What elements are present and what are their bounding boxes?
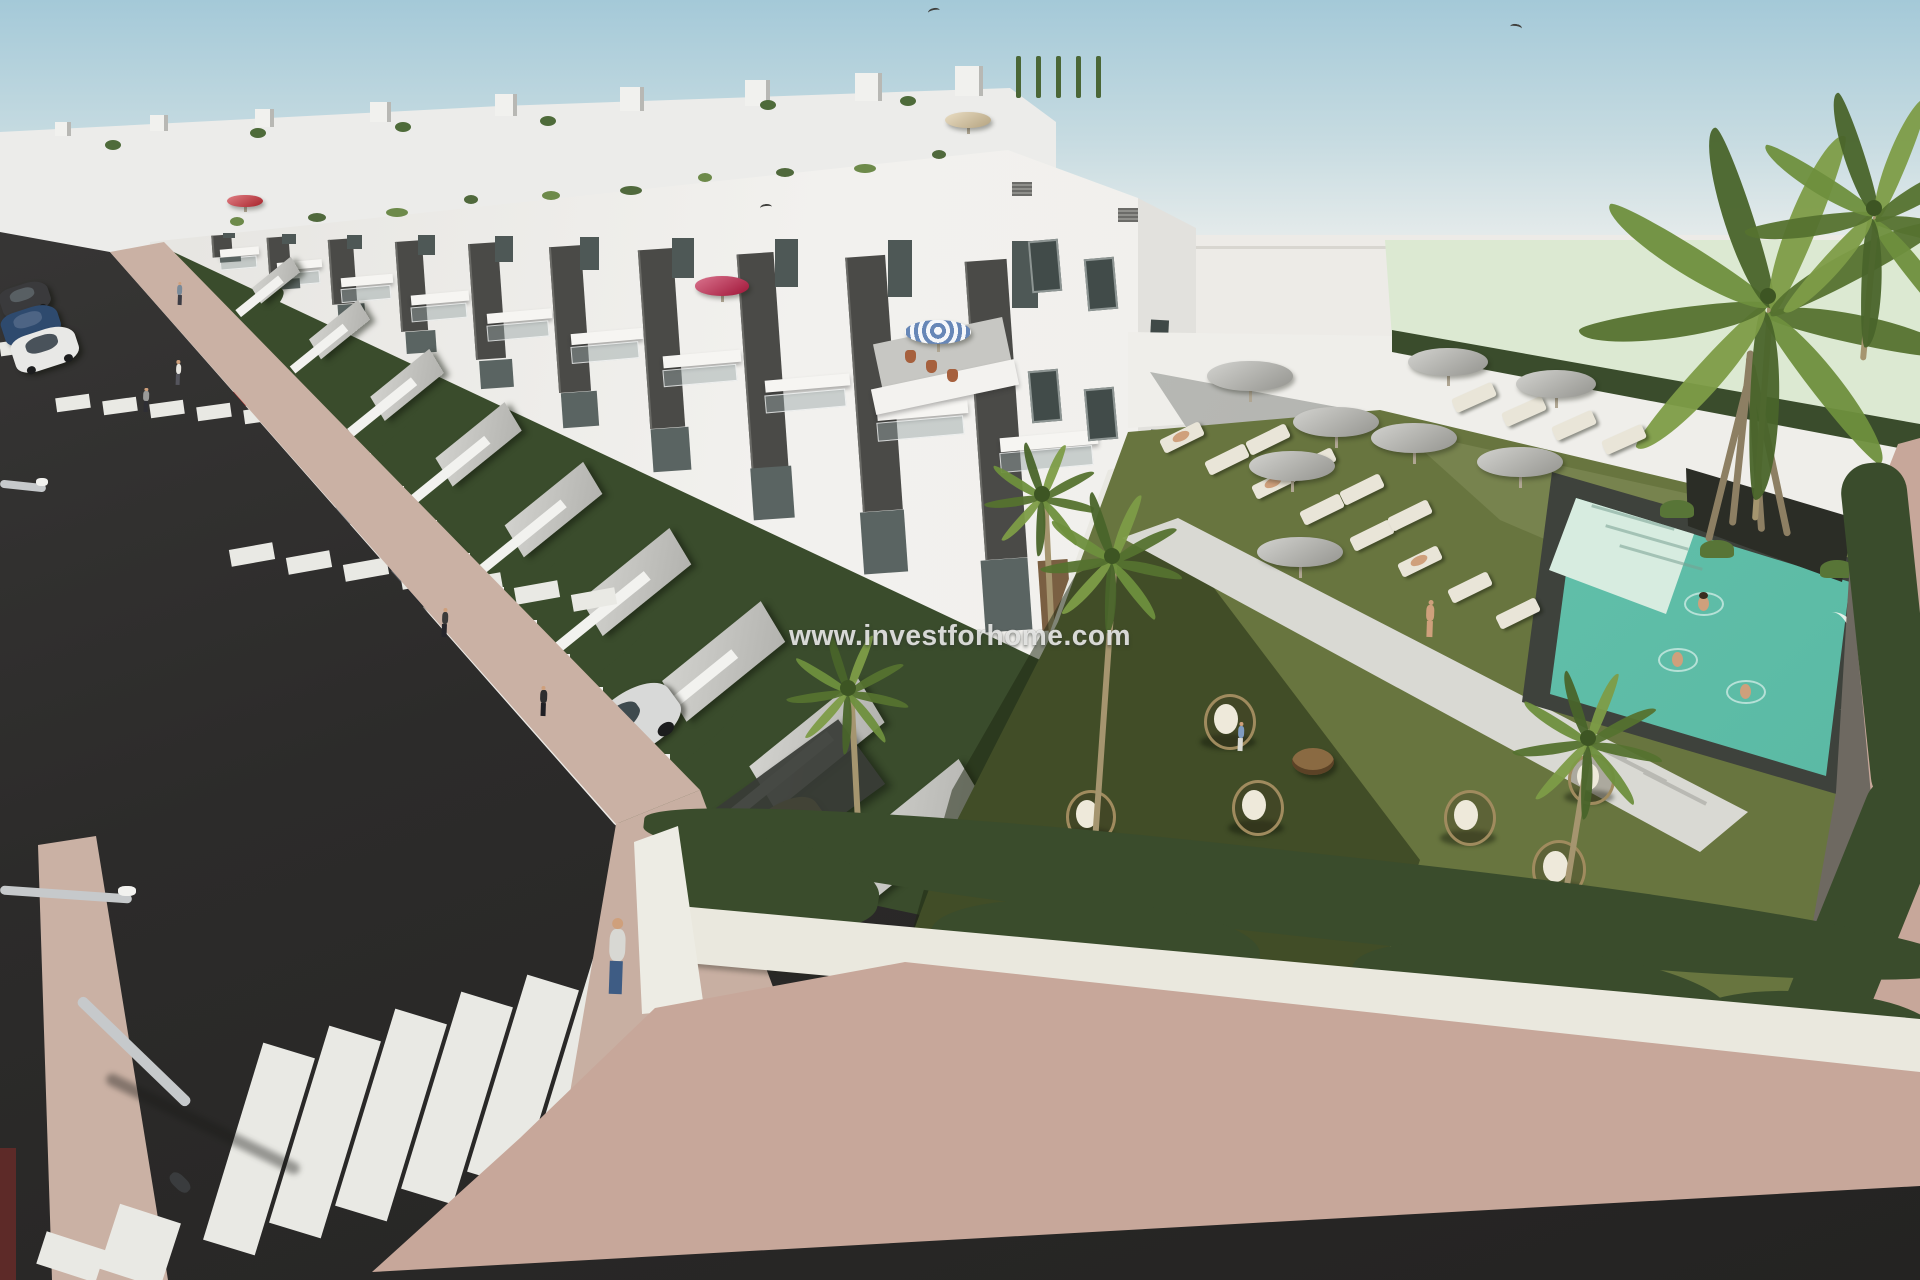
roof-chimney	[370, 102, 391, 122]
terrace-parasol-crimson	[695, 276, 749, 295]
roof-chimney	[255, 109, 274, 127]
torso	[1238, 726, 1245, 738]
roof-chimney	[855, 73, 882, 101]
roof-chimney	[620, 87, 644, 111]
ground-glass-door	[479, 359, 514, 389]
palm-lawn-a-crown	[1104, 548, 1120, 564]
legs	[178, 295, 182, 305]
terrace-plant	[698, 173, 712, 182]
head	[612, 918, 623, 929]
terrace-plant	[542, 191, 560, 200]
roof-plant	[105, 140, 121, 150]
ground-glass-door	[405, 330, 436, 354]
terracotta-pot	[905, 350, 916, 363]
roof-plant	[900, 96, 916, 106]
lawn-parasol-gray	[1249, 451, 1335, 482]
ground-glass-door	[860, 509, 908, 574]
roof-plant	[250, 128, 266, 138]
legs	[609, 960, 623, 994]
torso	[609, 929, 627, 961]
watermark: www.investforhome.com	[29, 620, 1891, 653]
upper-window	[888, 240, 912, 298]
roof-chimney	[55, 122, 71, 136]
torso	[1426, 605, 1435, 621]
chair-cushion	[1543, 851, 1568, 883]
palm-lawn-b-crown	[1580, 730, 1596, 746]
palm-pool-second-crown	[1866, 200, 1882, 216]
upper-window	[418, 235, 435, 255]
legs	[176, 374, 181, 385]
end-house-window	[1028, 369, 1062, 423]
torso	[540, 690, 547, 703]
red-corner-object	[0, 1148, 16, 1280]
end-house-window	[1028, 239, 1062, 293]
legs	[144, 401, 148, 412]
roof-cypress	[1076, 56, 1081, 98]
rooftop-ac-unit	[1118, 208, 1138, 222]
roof-chimney	[495, 94, 517, 116]
planter-grass	[1700, 540, 1734, 558]
pedestrian-hoodie	[603, 918, 632, 997]
upper-window	[580, 237, 600, 270]
upper-window	[775, 239, 798, 288]
lawn-parasol-gray	[1477, 447, 1563, 478]
terracotta-pot	[926, 360, 937, 373]
lawn-parasol-gray	[1408, 348, 1488, 377]
ground-glass-door	[651, 427, 692, 473]
roof-chimney	[150, 115, 168, 131]
terrace-plant	[854, 164, 876, 173]
roof-plant	[395, 122, 411, 132]
rooftop-ac-unit	[1012, 182, 1032, 196]
terrace-plant	[464, 195, 478, 204]
legs	[540, 703, 546, 716]
architectural-render: www.investforhome.com	[0, 0, 1920, 1280]
lawn-parasol-gray	[1207, 361, 1293, 392]
swimmer	[1672, 652, 1683, 667]
end-house-window	[1084, 387, 1118, 441]
upper-window	[495, 236, 513, 262]
palm-pool-main-crown	[1760, 288, 1776, 304]
torso	[143, 391, 149, 401]
roof-parasol-beige	[945, 112, 991, 129]
roof-plant	[540, 116, 556, 126]
roof-cypress	[1016, 56, 1021, 98]
rattan-table	[1292, 748, 1334, 775]
chair-cushion	[1242, 790, 1266, 820]
pedestrian	[537, 686, 548, 717]
legs	[1238, 738, 1243, 751]
planter-grass	[1660, 500, 1694, 518]
upper-window	[282, 234, 296, 244]
streetlight-head	[36, 478, 48, 486]
roof-cypress	[1036, 56, 1041, 98]
garden-visitor	[1235, 722, 1246, 752]
chair-cushion	[1214, 704, 1238, 734]
chair-cushion	[1454, 800, 1478, 830]
lawn-parasol-gray	[1371, 423, 1457, 454]
end-house-window	[1084, 257, 1118, 311]
pedestrian	[142, 388, 151, 413]
terrace-plant	[308, 213, 326, 222]
upper-window	[672, 238, 693, 278]
lawn-parasol-gray	[1293, 407, 1379, 438]
roof-chimney	[955, 66, 983, 96]
terracotta-pot	[947, 369, 958, 382]
upper-window	[347, 235, 362, 250]
pedestrian	[174, 360, 184, 386]
torso	[176, 364, 182, 375]
lawn-parasol-gray	[1257, 537, 1343, 568]
roof-cypress	[1056, 56, 1061, 98]
lawn-parasol-gray	[1516, 370, 1596, 399]
palm-garden-a-crown	[840, 680, 856, 696]
palm-garden-b-crown	[1034, 486, 1050, 502]
torso	[177, 285, 182, 295]
upper-window	[223, 233, 235, 238]
roof-plant	[760, 100, 776, 110]
terrace-parasol-striped	[905, 320, 971, 344]
swimmer-hair	[1699, 592, 1708, 599]
roof-cypress	[1096, 56, 1101, 98]
ground-glass-door	[750, 466, 795, 521]
ground-glass-door	[561, 391, 599, 429]
pedestrian	[176, 282, 184, 305]
streetlight-head	[118, 886, 136, 896]
swimmer	[1740, 684, 1751, 699]
